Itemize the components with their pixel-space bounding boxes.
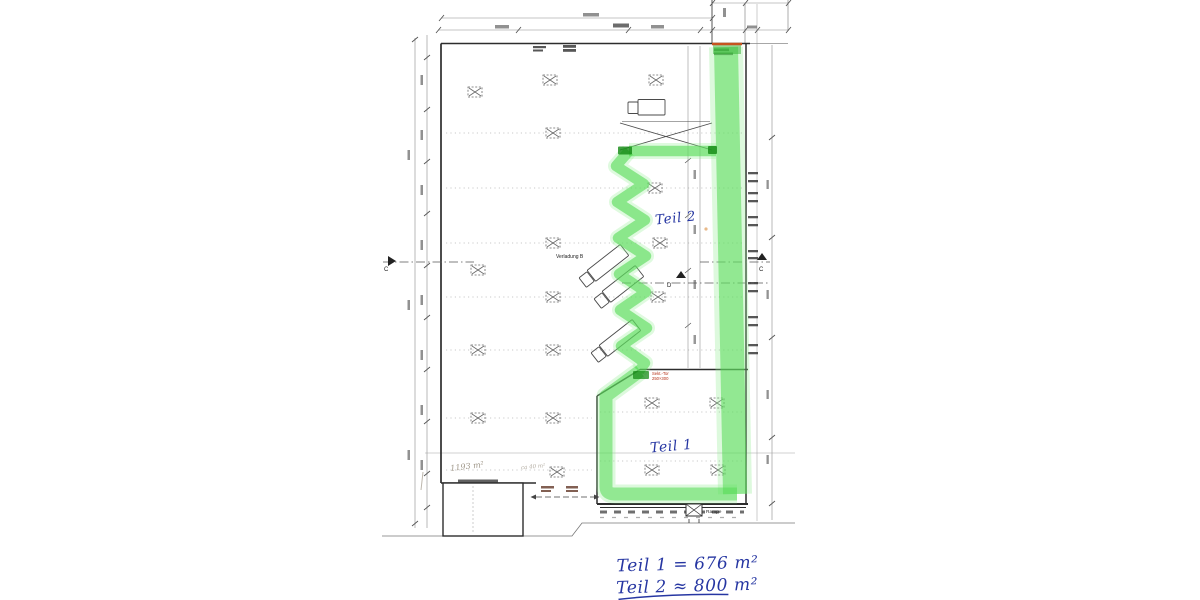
teil2-region-label: Teil 2 — [654, 208, 697, 228]
section-d-label: D — [667, 283, 672, 289]
pencil-small-note: ca 40 m² — [521, 462, 546, 471]
truck-top — [628, 100, 665, 116]
handwritten-summary: Teil 1 = 676 m² Teil 2 ≈ 800 m² — [615, 553, 759, 600]
green-highlight-path — [606, 45, 741, 494]
ramp-box — [686, 504, 702, 523]
verladung-label: Verladung B — [556, 254, 584, 260]
teil1-region-label: Teil 1 — [649, 437, 693, 457]
scanned-floor-plan-page: Rampe — [0, 0, 1200, 600]
pencil-notes: 1193 m² ca 40 m² — [450, 460, 546, 473]
floor-plan-svg: Rampe — [0, 0, 1200, 600]
pencil-area-note: 1193 m² — [450, 460, 485, 473]
red-door-label-line2: 250×300 — [652, 376, 669, 381]
summary-line-1: Teil 1 = 676 m² — [616, 553, 758, 577]
rampe-label: Rampe — [706, 509, 722, 515]
section-c-right-label: C — [759, 267, 764, 273]
annex-room — [421, 472, 523, 536]
section-c-left-label: C — [384, 267, 389, 273]
